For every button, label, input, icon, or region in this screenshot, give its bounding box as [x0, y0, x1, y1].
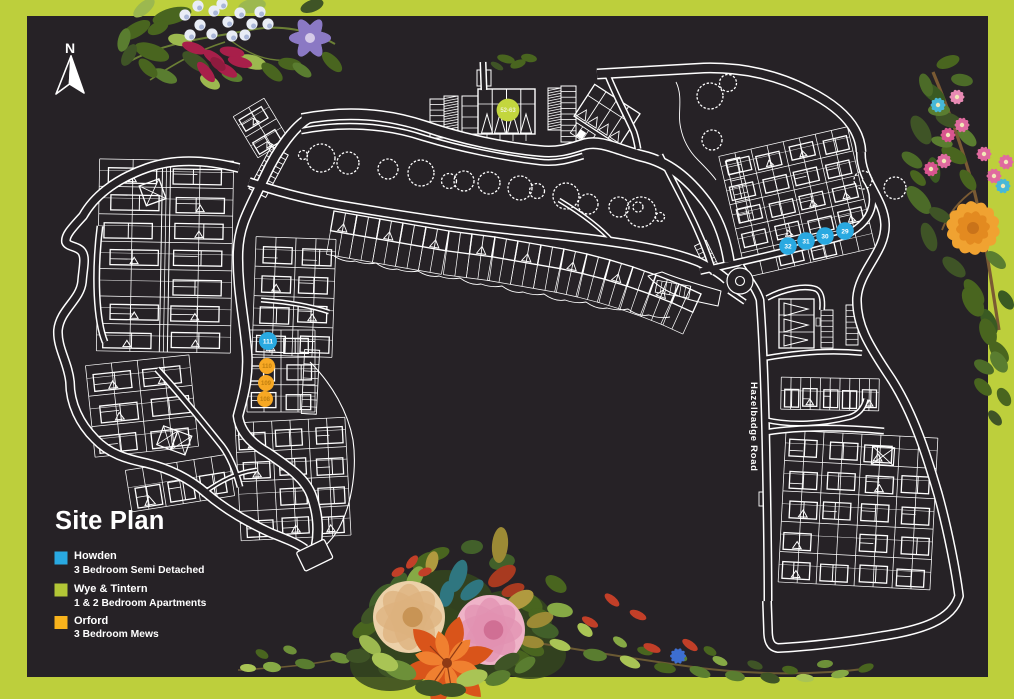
svg-text:3 Bedroom Mews: 3 Bedroom Mews [74, 629, 159, 640]
svg-text:32: 32 [784, 243, 792, 250]
svg-text:31: 31 [802, 238, 810, 245]
svg-text:29: 29 [841, 228, 849, 235]
svg-text:111: 111 [263, 338, 274, 345]
svg-text:52-63: 52-63 [500, 108, 516, 114]
svg-text:Hazelbadge Road: Hazelbadge Road [748, 382, 759, 472]
svg-text:Howden: Howden [74, 550, 117, 562]
svg-text:N: N [65, 40, 75, 56]
svg-text:108: 108 [260, 397, 271, 403]
svg-text:110: 110 [262, 364, 272, 370]
svg-text:1 & 2 Bedroom Apartments: 1 & 2 Bedroom Apartments [74, 598, 207, 609]
svg-text:3 Bedroom Semi Detached: 3 Bedroom Semi Detached [74, 565, 204, 576]
svg-text:109: 109 [261, 381, 272, 387]
svg-text:Site Plan: Site Plan [55, 507, 165, 535]
svg-text:Orford: Orford [74, 615, 108, 627]
svg-text:30: 30 [821, 233, 829, 240]
svg-text:Wye & Tintern: Wye & Tintern [74, 583, 148, 595]
